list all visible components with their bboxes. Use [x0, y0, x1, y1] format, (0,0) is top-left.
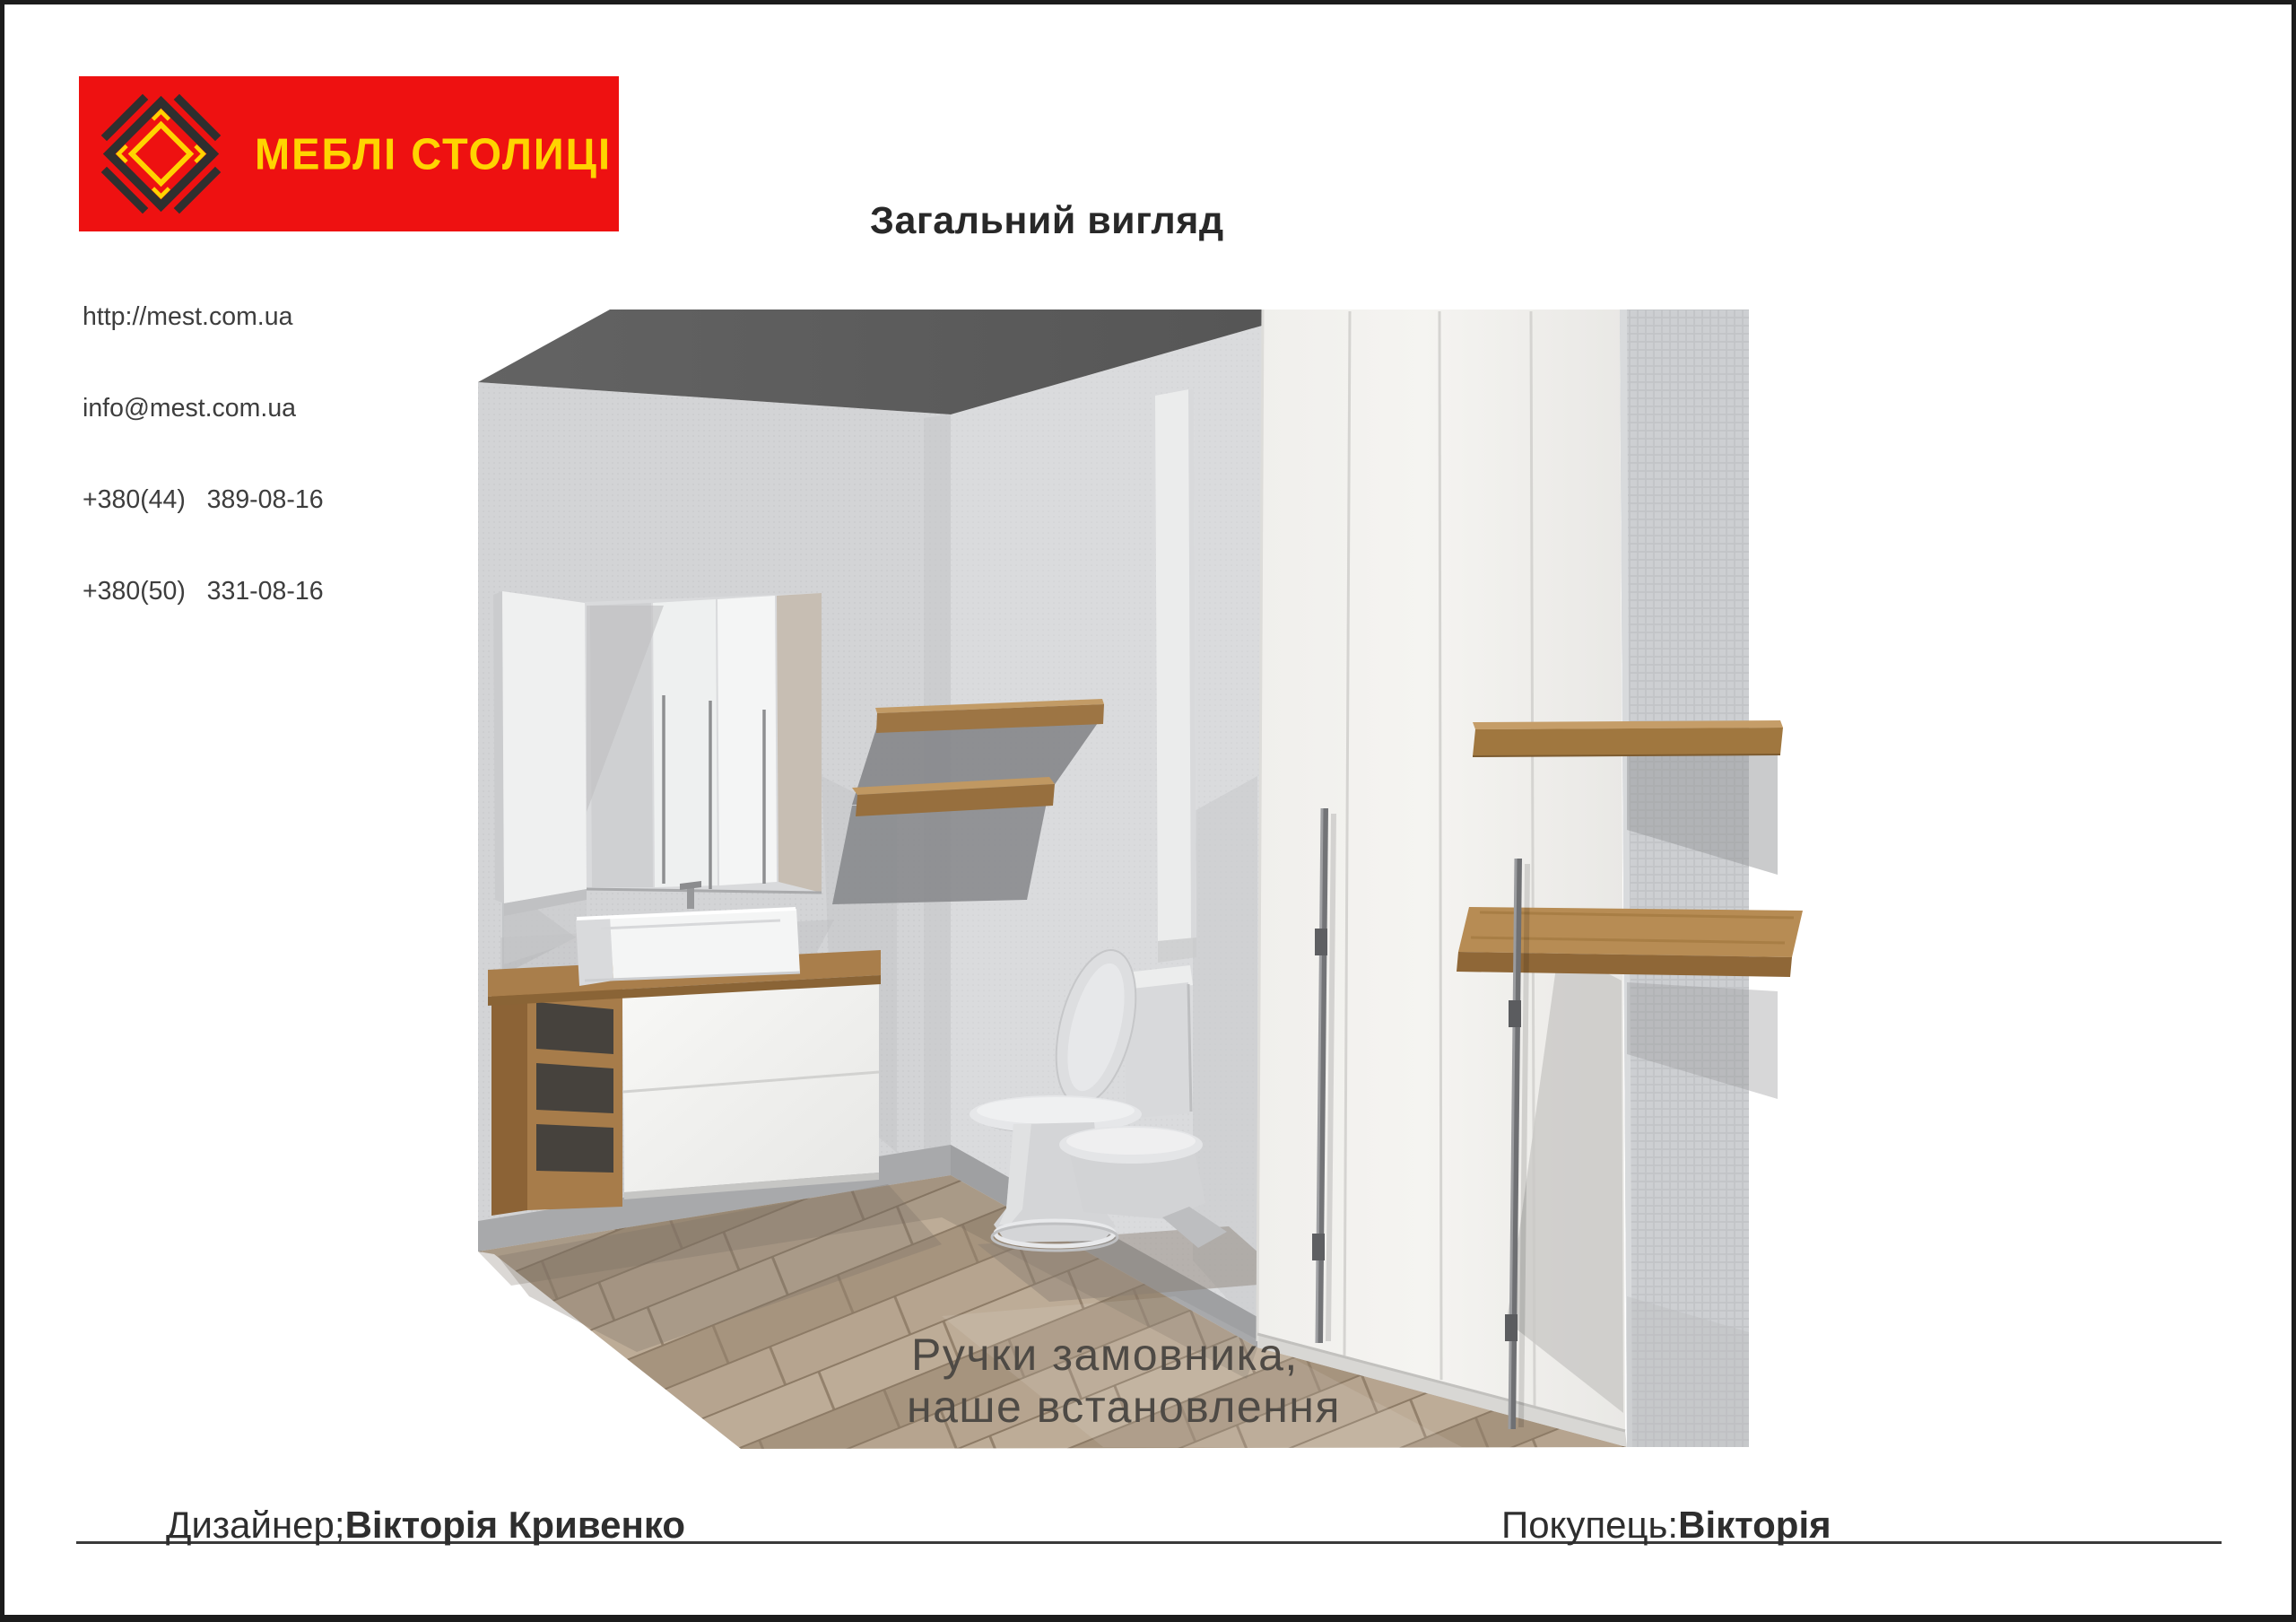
wall-cabinet	[493, 591, 587, 964]
render-annotation-line1: Ручки замовника,	[911, 1330, 1299, 1380]
mirror	[585, 593, 822, 893]
customer-name: Вікторія	[1678, 1504, 1831, 1546]
page-title: Загальний вигляд	[870, 199, 1224, 243]
wall-shelf-upper-right	[1473, 720, 1783, 756]
contact-website: http://mest.com.ua	[83, 301, 324, 332]
contact-block: http://mest.com.ua info@mest.com.ua +380…	[83, 240, 324, 667]
document-page: МЕБЛІ СТОЛИЦІ http://mest.com.ua info@me…	[0, 0, 2296, 1622]
footer-designer: Дизайнер;Вікторія Кривенко	[166, 1504, 685, 1547]
contact-phone-2: +380(50) 331-08-16	[83, 576, 324, 606]
contact-phone-1: +380(44) 389-08-16	[83, 484, 324, 515]
wardrobe	[1257, 310, 1627, 1447]
designer-name: Вікторія Кривенко	[345, 1504, 685, 1546]
wall-panel	[1155, 388, 1196, 963]
render-annotation-line2: наше встановлення	[907, 1382, 1341, 1432]
room-render: Ручки замовника, наше встановлення	[475, 310, 1812, 1449]
footer-customer: Покупець:Вікторія	[1501, 1504, 1831, 1547]
faucet-icon	[687, 885, 694, 909]
logo-text: МЕБЛІ СТОЛИЦІ	[255, 74, 613, 235]
contact-email: info@mest.com.ua	[83, 393, 324, 423]
wall-shelf-lower-right	[1457, 907, 1803, 977]
designer-label: Дизайнер;	[166, 1504, 345, 1546]
tiled-wall-column	[1620, 310, 1778, 1447]
logo-banner: МЕБЛІ СТОЛИЦІ	[79, 76, 619, 231]
customer-label: Покупець:	[1501, 1504, 1678, 1546]
logo-diamond-icon	[84, 79, 238, 229]
